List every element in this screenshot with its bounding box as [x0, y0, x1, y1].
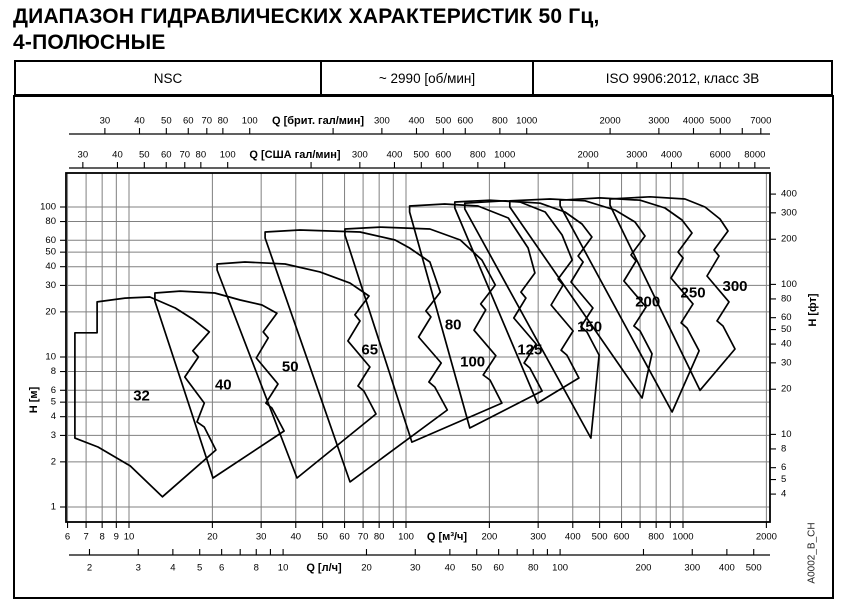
tick-label-imp_gpm-60: 60 — [183, 116, 194, 127]
tick-label-lps-500: 500 — [746, 563, 762, 574]
tick-label-lps-6: 6 — [219, 563, 224, 574]
tick-label-hft-80: 80 — [781, 293, 792, 304]
tick-label-us_gpm-2000: 2000 — [578, 150, 599, 161]
tick-label-hft-4: 4 — [781, 489, 786, 500]
tick-label-hft-200: 200 — [781, 234, 797, 245]
tick-label-hm-30: 30 — [45, 280, 56, 291]
tick-label-imp_gpm-800: 800 — [492, 116, 508, 127]
tick-label-lps-50: 50 — [471, 563, 482, 574]
tick-label-imp_gpm-70: 70 — [202, 116, 213, 127]
axis-title-h-ft: H [фт] — [807, 293, 819, 327]
tick-label-lps-60: 60 — [493, 563, 504, 574]
tick-label-m3h-10: 10 — [124, 532, 135, 543]
envelope-label-80: 80 — [445, 317, 462, 334]
tick-label-lps-300: 300 — [684, 563, 700, 574]
tick-label-us_gpm-6000: 6000 — [710, 150, 731, 161]
tick-label-m3h-400: 400 — [565, 532, 581, 543]
tick-label-hm-100: 100 — [40, 202, 56, 213]
tick-label-imp_gpm-4000: 4000 — [683, 116, 704, 127]
tick-label-lps-8: 8 — [254, 563, 259, 574]
envelope-label-300: 300 — [723, 278, 748, 295]
tick-label-m3h-20: 20 — [207, 532, 218, 543]
tick-label-hm-2: 2 — [51, 456, 56, 467]
tick-label-imp_gpm-40: 40 — [134, 116, 145, 127]
tick-label-hft-30: 30 — [781, 357, 792, 368]
tick-label-hm-5: 5 — [51, 397, 56, 408]
tick-label-us_gpm-4000: 4000 — [661, 150, 682, 161]
envelope-label-100: 100 — [460, 354, 485, 371]
axis-title-m3h: Q [м³/ч] — [427, 531, 468, 543]
tick-label-hm-60: 60 — [45, 235, 56, 246]
envelope-300 — [610, 197, 735, 390]
tick-label-hm-10: 10 — [45, 352, 56, 363]
tick-label-hft-20: 20 — [781, 384, 792, 395]
tick-label-hm-8: 8 — [51, 366, 56, 377]
tick-label-hft-8: 8 — [781, 443, 786, 454]
tick-label-hft-40: 40 — [781, 339, 792, 350]
tick-label-hm-6: 6 — [51, 385, 56, 396]
tick-label-hm-80: 80 — [45, 216, 56, 227]
tick-label-imp_gpm-7000: 7000 — [750, 116, 771, 127]
tick-label-imp_gpm-5000: 5000 — [710, 116, 731, 127]
tick-label-us_gpm-50: 50 — [139, 150, 150, 161]
tick-label-m3h-500: 500 — [592, 532, 608, 543]
tick-label-m3h-70: 70 — [358, 532, 369, 543]
tick-label-m3h-600: 600 — [614, 532, 630, 543]
envelope-label-32: 32 — [133, 387, 150, 404]
tick-label-us_gpm-100: 100 — [220, 150, 236, 161]
tick-label-imp_gpm-100: 100 — [242, 116, 258, 127]
tick-label-m3h-800: 800 — [648, 532, 664, 543]
drawing-code: A0002_B_CH — [807, 522, 818, 583]
tick-label-lps-3: 3 — [136, 563, 141, 574]
tick-label-lps-40: 40 — [445, 563, 456, 574]
tick-label-m3h-7: 7 — [83, 532, 88, 543]
tick-label-hft-10: 10 — [781, 429, 792, 440]
tick-label-imp_gpm-50: 50 — [161, 116, 172, 127]
axis-title-imp_gpm: Q [брит. гал/мин] — [272, 115, 364, 127]
envelope-label-250: 250 — [681, 284, 706, 301]
tick-label-us_gpm-40: 40 — [112, 150, 123, 161]
tick-label-m3h-40: 40 — [290, 532, 301, 543]
tick-label-lps-10: 10 — [278, 563, 289, 574]
tick-label-imp_gpm-80: 80 — [218, 116, 229, 127]
tick-label-us_gpm-800: 800 — [470, 150, 486, 161]
tick-label-m3h-100: 100 — [398, 532, 414, 543]
tick-label-hm-20: 20 — [45, 306, 56, 317]
envelope-label-50: 50 — [282, 358, 299, 375]
tick-label-hm-50: 50 — [45, 247, 56, 258]
tick-label-lps-80: 80 — [528, 563, 539, 574]
axis-title-h-m: H [м] — [28, 386, 40, 413]
tick-label-us_gpm-30: 30 — [78, 150, 89, 161]
tick-label-m3h-200: 200 — [481, 532, 497, 543]
tick-label-m3h-8: 8 — [100, 532, 105, 543]
tick-label-lps-20: 20 — [361, 563, 372, 574]
tick-label-us_gpm-600: 600 — [435, 150, 451, 161]
tick-label-imp_gpm-3000: 3000 — [648, 116, 669, 127]
tick-label-hm-4: 4 — [51, 411, 56, 422]
tick-label-us_gpm-70: 70 — [179, 150, 190, 161]
tick-label-lps-4: 4 — [170, 563, 175, 574]
range-chart: 3040506070801003004005006008001000200030… — [0, 0, 848, 602]
tick-label-hft-6: 6 — [781, 462, 786, 473]
envelope-label-40: 40 — [215, 377, 232, 394]
tick-label-hm-40: 40 — [45, 261, 56, 272]
plot-frame — [66, 173, 770, 522]
tick-label-us_gpm-1000: 1000 — [494, 150, 515, 161]
tick-label-m3h-300: 300 — [530, 532, 546, 543]
tick-label-us_gpm-80: 80 — [196, 150, 207, 161]
tick-label-m3h-2000: 2000 — [756, 532, 777, 543]
tick-label-lps-30: 30 — [410, 563, 421, 574]
tick-label-imp_gpm-600: 600 — [457, 116, 473, 127]
tick-label-hft-5: 5 — [781, 474, 786, 485]
tick-label-hft-60: 60 — [781, 312, 792, 323]
axis-title-us_gpm: Q [США гал/мин] — [249, 149, 341, 161]
tick-label-m3h-30: 30 — [256, 532, 267, 543]
tick-label-hft-100: 100 — [781, 279, 797, 290]
envelope-200 — [510, 199, 652, 398]
tick-label-m3h-50: 50 — [317, 532, 328, 543]
tick-label-lps-100: 100 — [552, 563, 568, 574]
tick-label-hft-50: 50 — [781, 324, 792, 335]
tick-label-imp_gpm-400: 400 — [409, 116, 425, 127]
tick-label-us_gpm-60: 60 — [161, 150, 172, 161]
tick-label-us_gpm-8000: 8000 — [744, 150, 765, 161]
tick-label-us_gpm-300: 300 — [352, 150, 368, 161]
tick-label-m3h-60: 60 — [339, 532, 350, 543]
tick-label-hm-1: 1 — [51, 502, 56, 513]
tick-label-imp_gpm-500: 500 — [435, 116, 451, 127]
tick-label-hft-400: 400 — [781, 189, 797, 200]
tick-label-hft-300: 300 — [781, 207, 797, 218]
tick-label-imp_gpm-300: 300 — [374, 116, 390, 127]
tick-label-us_gpm-3000: 3000 — [626, 150, 647, 161]
tick-label-hm-3: 3 — [51, 430, 56, 441]
tick-label-imp_gpm-1000: 1000 — [516, 116, 537, 127]
tick-label-us_gpm-400: 400 — [387, 150, 403, 161]
tick-label-imp_gpm-30: 30 — [100, 116, 111, 127]
tick-label-us_gpm-500: 500 — [413, 150, 429, 161]
tick-label-m3h-80: 80 — [374, 532, 385, 543]
axis-title-lps: Q [л/ч] — [306, 562, 342, 574]
tick-label-m3h-1000: 1000 — [672, 532, 693, 543]
tick-label-lps-5: 5 — [197, 563, 202, 574]
tick-label-lps-200: 200 — [636, 563, 652, 574]
tick-label-m3h-9: 9 — [114, 532, 119, 543]
envelope-label-65: 65 — [361, 342, 378, 359]
tick-label-lps-2: 2 — [87, 563, 92, 574]
tick-label-lps-400: 400 — [719, 563, 735, 574]
tick-label-m3h-6: 6 — [65, 532, 70, 543]
tick-label-imp_gpm-2000: 2000 — [600, 116, 621, 127]
